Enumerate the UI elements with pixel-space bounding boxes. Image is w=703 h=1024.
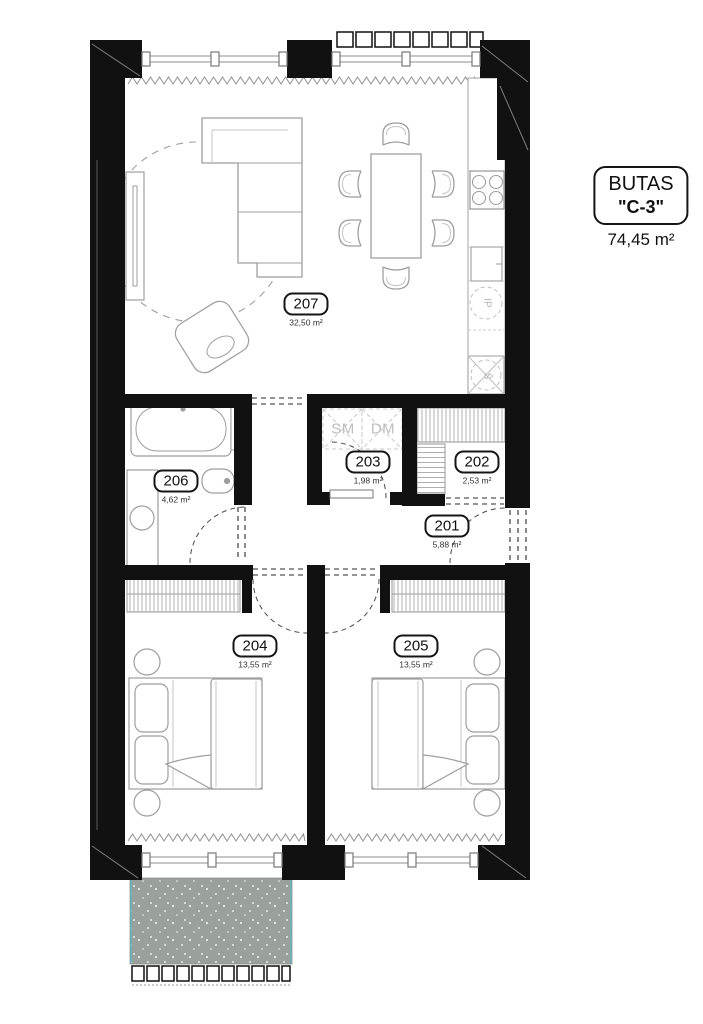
room-number: 202 <box>464 454 489 471</box>
washer-label: SM <box>331 421 355 438</box>
fridge-label: Š <box>482 373 493 380</box>
apartment-unit-label: "C-3" <box>608 196 673 218</box>
apartment-type-label: BUTAS <box>608 173 673 196</box>
room-area: 13,55 m² <box>399 660 433 670</box>
dryer-label: DM <box>371 421 395 438</box>
room-number-box: 206 <box>153 470 198 493</box>
room-area: 13,55 m² <box>238 660 272 670</box>
bed-204 <box>129 678 262 789</box>
dishwasher-label: IP <box>482 298 493 307</box>
upper-railing <box>337 32 483 47</box>
room-number: 201 <box>434 518 459 535</box>
room-area: 32,50 m² <box>289 318 323 328</box>
room-number-box: 204 <box>232 635 277 658</box>
dining-table <box>371 154 421 258</box>
armchair <box>171 297 253 377</box>
apartment-title-box: BUTAS "C-3" <box>593 166 688 225</box>
floorplan-canvas: 201 5,88 m² 202 2,53 m² 203 1,98 m² 204 … <box>0 0 703 1024</box>
room-area: 5,88 m² <box>433 540 462 550</box>
room-label-203: 203 1,98 m² <box>345 451 390 486</box>
sofa <box>202 118 302 277</box>
room-label-204: 204 13,55 m² <box>232 635 277 670</box>
apartment-total-area: 74,45 m² <box>607 230 674 250</box>
room-area: 1,98 m² <box>354 476 383 486</box>
room-area: 2,53 m² <box>463 476 492 486</box>
tv-screen <box>133 186 137 286</box>
apartment-title-block: BUTAS "C-3" 74,45 m² <box>593 166 688 250</box>
room-number: 203 <box>355 454 380 471</box>
floorplan-drawing <box>0 0 703 1024</box>
room-number-box: 203 <box>345 451 390 474</box>
room-number: 204 <box>242 638 267 655</box>
stool <box>134 790 160 816</box>
storage-shelf <box>417 444 445 494</box>
stool <box>134 649 160 675</box>
toilet <box>202 469 234 493</box>
insulation-zigzag-bottom-left <box>128 834 305 841</box>
stove <box>470 171 504 209</box>
room-number-box: 207 <box>283 293 328 316</box>
room-number-box: 201 <box>424 515 469 538</box>
room-label-207: 207 32,50 m² <box>283 293 328 328</box>
stool <box>474 649 500 675</box>
bed-205 <box>372 678 505 789</box>
room-area: 4,62 m² <box>162 495 191 505</box>
insulation-zigzag-bottom-right <box>327 834 502 841</box>
storage-wardrobe <box>417 408 505 442</box>
balcony-railing <box>132 966 290 981</box>
insulation-zigzag-top <box>128 77 500 84</box>
balcony <box>130 878 292 964</box>
room-number-box: 205 <box>393 635 438 658</box>
room-label-201: 201 5,88 m² <box>424 515 469 550</box>
room-number: 205 <box>403 638 428 655</box>
room-label-206: 206 4,62 m² <box>153 470 198 505</box>
door-leaf-203 <box>330 490 373 498</box>
bathtub <box>131 402 235 456</box>
room-label-202: 202 2,53 m² <box>454 451 499 486</box>
stool <box>474 790 500 816</box>
room-number: 207 <box>293 296 318 313</box>
room-label-205: 205 13,55 m² <box>393 635 438 670</box>
room-number: 206 <box>163 473 188 490</box>
room-number-box: 202 <box>454 451 499 474</box>
